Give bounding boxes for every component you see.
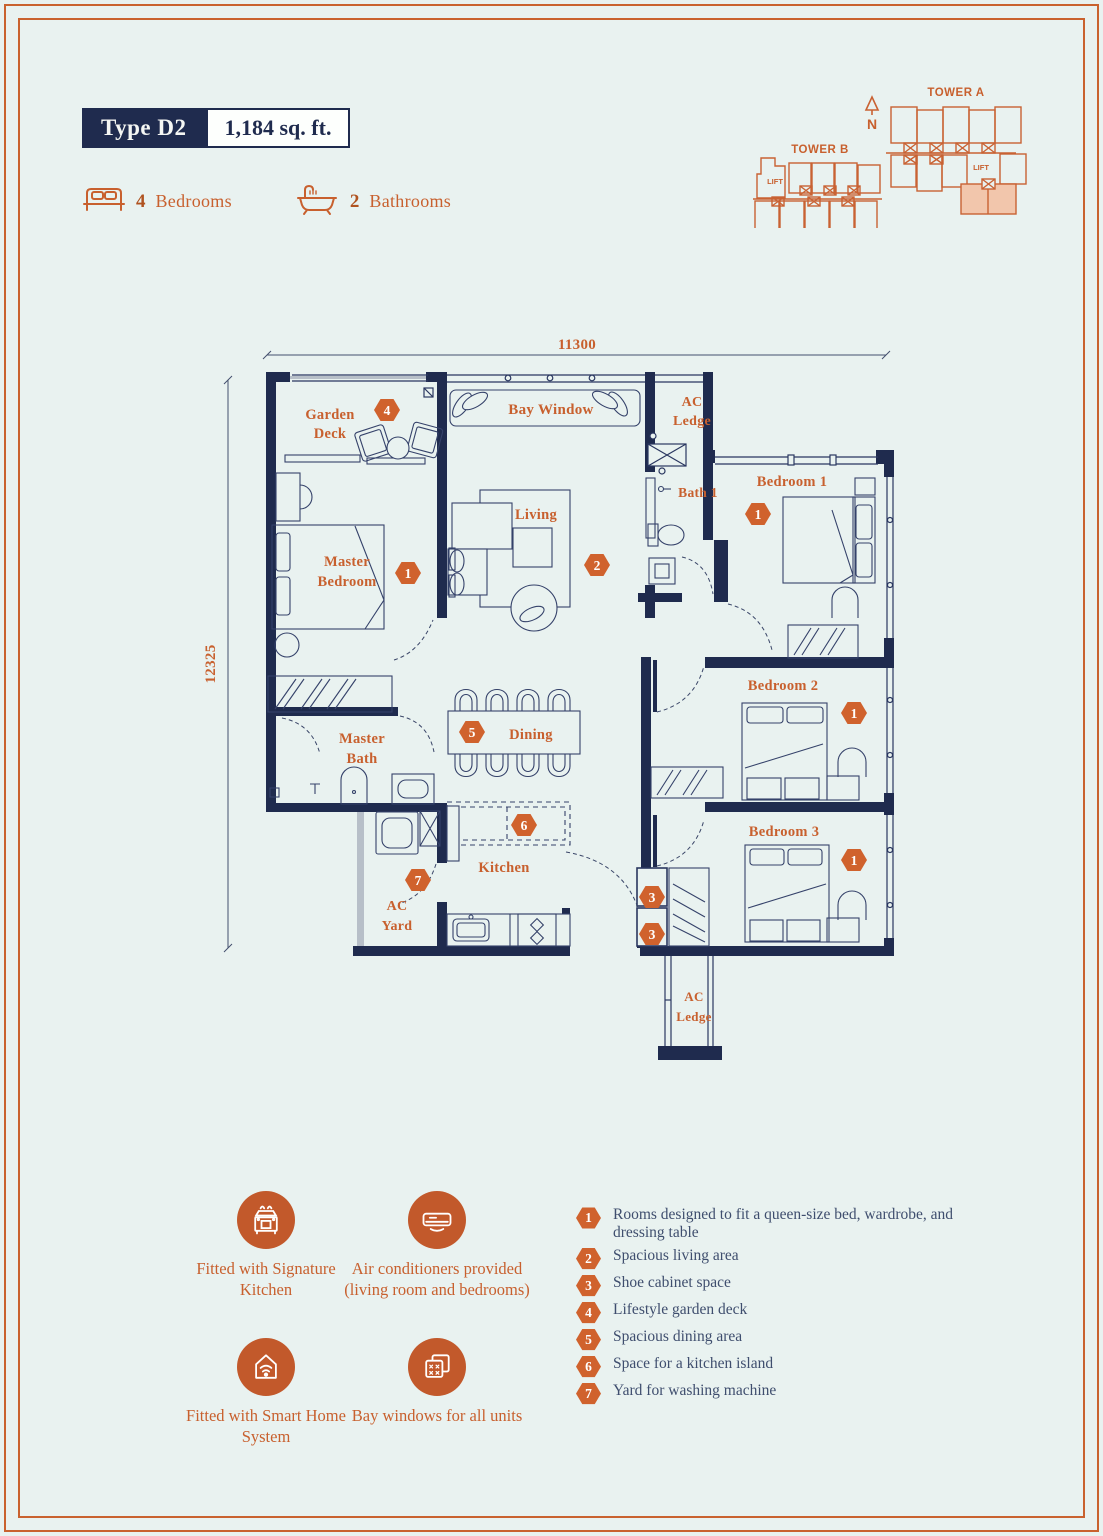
legend-hex-7: 7 [576, 1383, 601, 1405]
marker-bedroom1: 1 [755, 507, 762, 522]
legend-item-7: 7 Yard for washing machine [576, 1382, 976, 1405]
feature-label: Fitted with Signature Kitchen [171, 1258, 361, 1300]
ac-ledge-bottom-label: AC [684, 989, 703, 1004]
legend-item-6: 6 Space for a kitchen island [576, 1355, 976, 1378]
master-bath-label2: Bath [346, 751, 377, 767]
feature-smart-home: Fitted with Smart Home System [171, 1338, 361, 1447]
master-bath-label: Master [339, 731, 385, 747]
legend-item-5: 5 Spacious dining area [576, 1328, 976, 1351]
kitchen-icon [237, 1191, 295, 1249]
tower-b-label: TOWER B [791, 144, 849, 156]
bedroom3-label: Bedroom 3 [749, 824, 820, 840]
legend-hex-6: 6 [576, 1356, 601, 1378]
floorplan-drawing: 11300 12325 [195, 330, 970, 1100]
feature-bay-windows: Bay windows for all units [342, 1338, 532, 1426]
feature-label: Fitted with Smart Home System [171, 1405, 361, 1447]
bedrooms-summary: 4 Bedrooms [82, 184, 232, 219]
tower-a-outline [886, 107, 1026, 214]
legend-item-3: 3 Shoe cabinet space [576, 1274, 976, 1297]
master-bedroom-label: Master [324, 554, 370, 570]
legend-hex-3: 3 [576, 1275, 601, 1297]
ac-ledge-bottom-label2: Ledge [676, 1009, 711, 1024]
tower-b-outline [753, 158, 882, 228]
marker-shoe-lower: 3 [649, 927, 656, 942]
legend-item-1: 1 Rooms designed to fit a queen-size bed… [576, 1206, 976, 1243]
floorplan-page: Type D2 1,184 sq. ft. 4 Bedrooms [0, 0, 1103, 1536]
legend-hex-5: 5 [576, 1329, 601, 1351]
feature-label: Bay windows for all units [342, 1405, 532, 1426]
marker-shoe-upper: 3 [649, 890, 656, 905]
bay-window-label: Bay Window [508, 402, 593, 418]
ac-yard-label2: Yard [382, 919, 413, 934]
legend-item-2: 2 Spacious living area [576, 1247, 976, 1270]
dimension-top: 11300 [558, 337, 596, 353]
north-label: N [867, 116, 877, 132]
marker-bedroom2: 1 [851, 706, 858, 721]
bathrooms-label: Bathrooms [369, 191, 451, 212]
bed-bath-summary: 4 Bedrooms 2 Bathrooms [82, 182, 499, 221]
feature-label: Air conditioners provided (living room a… [342, 1258, 532, 1300]
ac-ledge-top-label2: Ledge [673, 414, 711, 429]
tower-b-lift-label: LIFT [767, 177, 783, 186]
tower-a-lift-label: LIFT [973, 163, 989, 172]
smart-home-icon [237, 1338, 295, 1396]
bedroom2-label: Bedroom 2 [748, 678, 819, 694]
bath1-label: Bath 1 [678, 485, 718, 500]
marker-master-bedroom: 1 [405, 566, 412, 581]
marker-garden-deck: 4 [384, 403, 391, 418]
unit-type-header: Type D2 1,184 sq. ft. [82, 108, 350, 148]
dining-label: Dining [509, 727, 553, 743]
unit-area-badge: 1,184 sq. ft. [206, 108, 351, 148]
feature-air-conditioners: Air conditioners provided (living room a… [342, 1191, 532, 1300]
north-arrow-icon [866, 97, 878, 115]
tower-a-label: TOWER A [927, 87, 984, 99]
master-bedroom-label2: Bedroom [317, 574, 376, 590]
legend-item-4: 4 Lifestyle garden deck [576, 1301, 976, 1324]
tower-keyplan: TOWER A TOWER B N LIFT LIFT [740, 78, 1040, 228]
bathtub-icon [294, 182, 340, 221]
bedrooms-count: 4 [136, 191, 146, 213]
bedrooms-label: Bedrooms [156, 191, 232, 212]
kitchen-label: Kitchen [478, 860, 529, 876]
garden-deck-label2: Deck [314, 426, 347, 442]
marker-island: 6 [521, 818, 528, 833]
marker-yard: 7 [415, 873, 422, 888]
ac-ledge-top-label: AC [682, 395, 703, 410]
bedroom1-label: Bedroom 1 [757, 474, 828, 490]
legend-hex-1: 1 [576, 1207, 601, 1229]
bathrooms-summary: 2 Bathrooms [294, 182, 451, 221]
ac-icon [408, 1191, 466, 1249]
feature-signature-kitchen: Fitted with Signature Kitchen [171, 1191, 361, 1300]
legend-hex-2: 2 [576, 1248, 601, 1270]
ac-yard-label: AC [387, 899, 408, 914]
bay-window-icon [408, 1338, 466, 1396]
bathrooms-count: 2 [350, 191, 360, 213]
dimension-left: 12325 [203, 645, 219, 684]
marker-bedroom3: 1 [851, 853, 858, 868]
plan-legend: 1 Rooms designed to fit a queen-size bed… [576, 1206, 976, 1405]
garden-deck-label: Garden [305, 407, 354, 423]
marker-dining: 5 [469, 725, 476, 740]
unit-type-badge: Type D2 [82, 108, 206, 148]
living-label: Living [515, 507, 558, 523]
marker-living: 2 [594, 558, 601, 573]
legend-hex-4: 4 [576, 1302, 601, 1324]
bed-icon [82, 184, 126, 219]
